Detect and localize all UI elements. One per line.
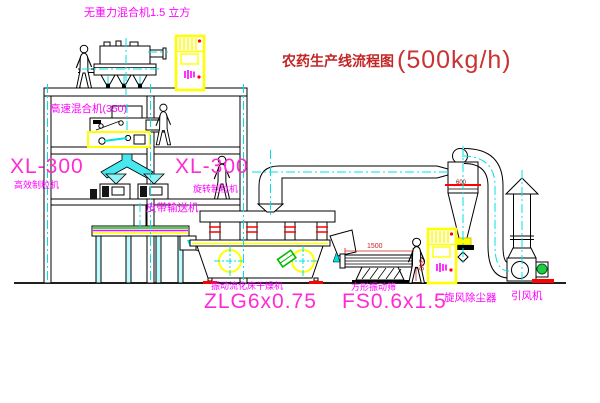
fluid-bed-dryer [190,211,335,284]
label-granulator-left-model: XL-300 [10,156,84,177]
induced-draft-fan [507,258,554,283]
label-granulator-mid-name: 旋转制粒机 [193,185,238,194]
exhaust-duct [258,166,448,212]
label-granulator-mid-model: XL-300 [175,156,249,177]
title-text: 农药生产线流程图 [282,51,394,71]
flow-diagram: 农药生产线流程图 (500kg/h) 无重力混合机1.5 立方 高速混合机(35… [0,0,600,403]
diagram-title: 农药生产线流程图 (500kg/h) [282,46,512,75]
gravity-free-mixer [78,41,166,88]
control-cabinet-top [176,36,204,90]
title-capacity: (500kg/h) [397,46,512,75]
person-icon [76,45,91,88]
label-cyclone: 旋风除尘器 [444,293,497,304]
granulator-left [90,174,130,199]
dim-screen-length: 1500 [367,243,383,250]
dim-cyclone-marking: 600 [456,180,466,186]
control-cabinet-cyclone [428,229,456,283]
granulator-right [138,174,168,199]
label-screen-model: FS0.6x1.5 [342,291,447,312]
label-fan: 引风机 [511,291,543,302]
label-dryer-model: ZLG6x0.75 [204,291,317,312]
label-high-speed-mixer: 高速混合机(350) [50,104,127,115]
label-belt-conveyor: 皮带输送机 [146,203,199,214]
dim-screen-height: 340 [417,259,424,271]
label-gravity-mixer: 无重力混合机1.5 立方 [84,8,190,19]
label-granulator-left-name: 高效制粒机 [14,181,59,190]
